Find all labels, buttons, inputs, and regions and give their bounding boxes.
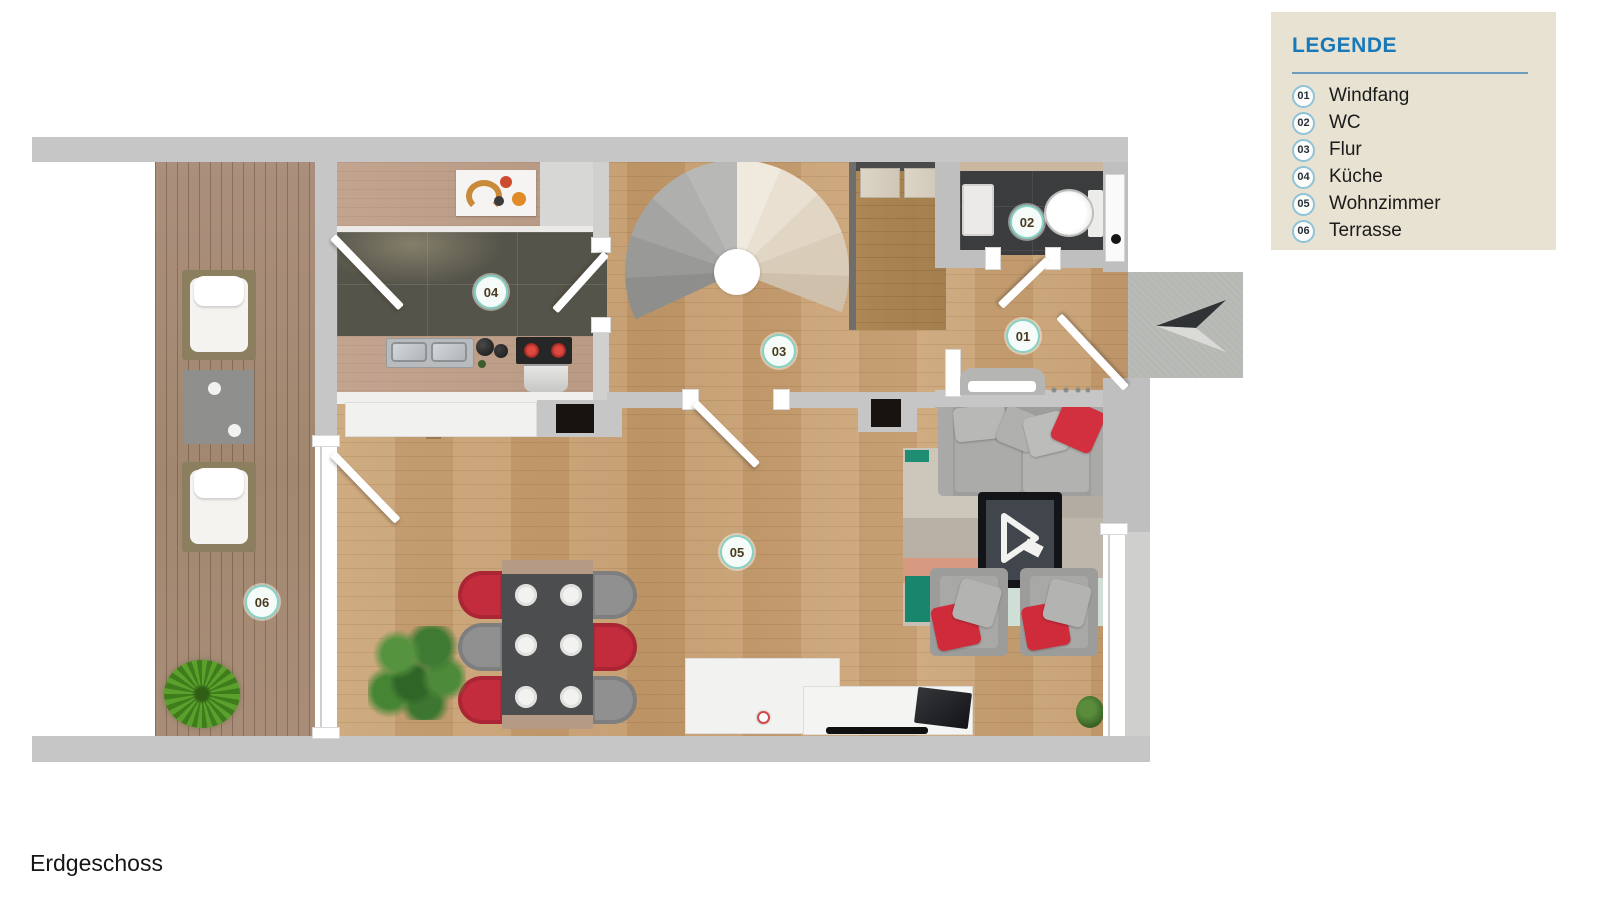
legend-label: Wohnzimmer: [1329, 193, 1441, 215]
burner-right: [551, 343, 566, 358]
wc-bottom-wall: [935, 250, 988, 268]
window-frame: [313, 436, 339, 446]
marker-number: 02: [1020, 215, 1034, 230]
legend-item-windfang: 01 Windfang: [1292, 86, 1556, 106]
food-bowl: [494, 196, 504, 206]
dining-chair-red: [591, 623, 637, 671]
kettle: [476, 338, 494, 356]
window-outer-sill: [1125, 532, 1150, 736]
armchair: [930, 568, 1008, 656]
living-window-right: [1103, 532, 1125, 736]
legend-label: WC: [1329, 112, 1361, 134]
door-hardware-dots: [1050, 387, 1090, 393]
legend-label: Windfang: [1329, 85, 1409, 107]
legend-item-wohnzimmer: 05 Wohnzimmer: [1292, 194, 1556, 214]
rug-stripe-teal: [905, 576, 931, 622]
closet-door-left: [860, 168, 900, 198]
wc-vanity: [962, 184, 994, 236]
room-marker-kueche: 04: [474, 275, 508, 309]
plate: [515, 584, 537, 606]
stair-center-post: [714, 249, 760, 295]
plate: [560, 584, 582, 606]
legend-panel: LEGENDE 01 Windfang 02 WC 03 Flur 04 Küc…: [1271, 12, 1556, 250]
small-plant: [1076, 696, 1104, 728]
door-frame: [946, 350, 960, 396]
dining-table: [502, 574, 593, 715]
burner-left: [524, 343, 539, 358]
marker-number: 05: [730, 545, 744, 560]
marker-number: 04: [484, 285, 498, 300]
marker-number: 06: [255, 595, 269, 610]
chair-headrest: [194, 468, 244, 498]
lowboard-knob: [757, 711, 770, 724]
room-marker-wohnzimmer: 05: [720, 535, 754, 569]
grass-plant: [164, 660, 240, 728]
wc-bottom-wall: [1060, 250, 1105, 268]
bottle: [478, 360, 486, 368]
legend-item-kueche: 04 Küche: [1292, 167, 1556, 187]
legend-number-badge: 06: [1292, 220, 1315, 243]
bench-cushion: [968, 381, 1036, 392]
dining-chair-gray: [591, 676, 637, 724]
kitchen-wall-upper: [593, 162, 609, 240]
entry-side-panel: [1105, 174, 1125, 262]
legend-item-flur: 03 Flur: [1292, 140, 1556, 160]
door-frame: [1046, 248, 1060, 269]
sofa: [938, 402, 1106, 496]
sideboard: [345, 402, 537, 437]
rug-stripe-teal: [905, 450, 929, 462]
legend-item-terrasse: 06 Terrasse: [1292, 221, 1556, 241]
terrace-chair: [182, 462, 256, 552]
marker-number: 01: [1016, 329, 1030, 344]
potted-plant: [368, 626, 466, 720]
outer-wall-top: [32, 137, 1128, 162]
plate: [515, 686, 537, 708]
armchair: [1020, 568, 1098, 656]
marker-number: 03: [772, 344, 786, 359]
chair-headrest: [194, 276, 244, 306]
food-orange: [512, 192, 526, 206]
plate: [560, 686, 582, 708]
terrace-deck: [155, 162, 317, 736]
room-marker-terrasse: 06: [245, 585, 279, 619]
stair-side-wall: [849, 162, 856, 330]
window-frame: [1101, 524, 1127, 534]
legend-divider: [1292, 72, 1528, 74]
entry-arrow-icon: [1152, 294, 1230, 354]
legend-number-badge: 01: [1292, 85, 1315, 108]
pot: [494, 344, 508, 358]
plate: [515, 634, 537, 656]
legend-item-wc: 02 WC: [1292, 113, 1556, 133]
window-frame: [313, 728, 339, 738]
sofa-armrest: [938, 402, 953, 496]
wc-shelf: [960, 162, 1105, 171]
terrace-partition-wall: [315, 162, 337, 442]
door-frame: [592, 318, 610, 332]
room-marker-windfang: 01: [1006, 319, 1040, 353]
legend-number-badge: 03: [1292, 139, 1315, 162]
door-frame: [592, 238, 610, 252]
dining-chair-red: [458, 571, 504, 619]
dining-table-end: [502, 560, 593, 575]
chimney-flue: [871, 399, 901, 427]
door-frame: [986, 248, 1000, 269]
toilet-bowl: [1046, 191, 1092, 235]
legend-number-badge: 05: [1292, 193, 1315, 216]
cup: [208, 382, 221, 395]
legend-label: Terrasse: [1329, 220, 1402, 242]
terrace-chair: [182, 270, 256, 360]
floor-title: Erdgeschoss: [30, 850, 163, 877]
outer-wall-bottom: [32, 736, 1150, 762]
oven-front: [524, 364, 568, 392]
legend-label: Küche: [1329, 166, 1383, 188]
wc-plant: [1002, 166, 1032, 186]
soundbar: [826, 727, 928, 734]
living-window-left: [315, 442, 337, 736]
legend-label: Flur: [1329, 139, 1362, 161]
sink-basin-left: [391, 342, 427, 362]
dining-table-end: [502, 714, 593, 729]
legend-title: LEGENDE: [1292, 34, 1556, 58]
right-wall-lower: [1103, 378, 1150, 532]
dining-chair-gray: [591, 571, 637, 619]
room-marker-wc: 02: [1010, 205, 1044, 239]
room-marker-flur: 03: [762, 334, 796, 368]
door-peephole-dot: [1111, 234, 1121, 244]
legend-number-badge: 04: [1292, 166, 1315, 189]
tv-flat: [914, 687, 972, 729]
plate: [560, 634, 582, 656]
cup: [228, 424, 241, 437]
chimney-flue: [556, 404, 594, 433]
legend-number-badge: 02: [1292, 112, 1315, 135]
food-tomato: [500, 176, 512, 188]
door-frame: [774, 390, 789, 409]
terrace-table: [184, 370, 254, 444]
sink-basin-right: [431, 342, 467, 362]
